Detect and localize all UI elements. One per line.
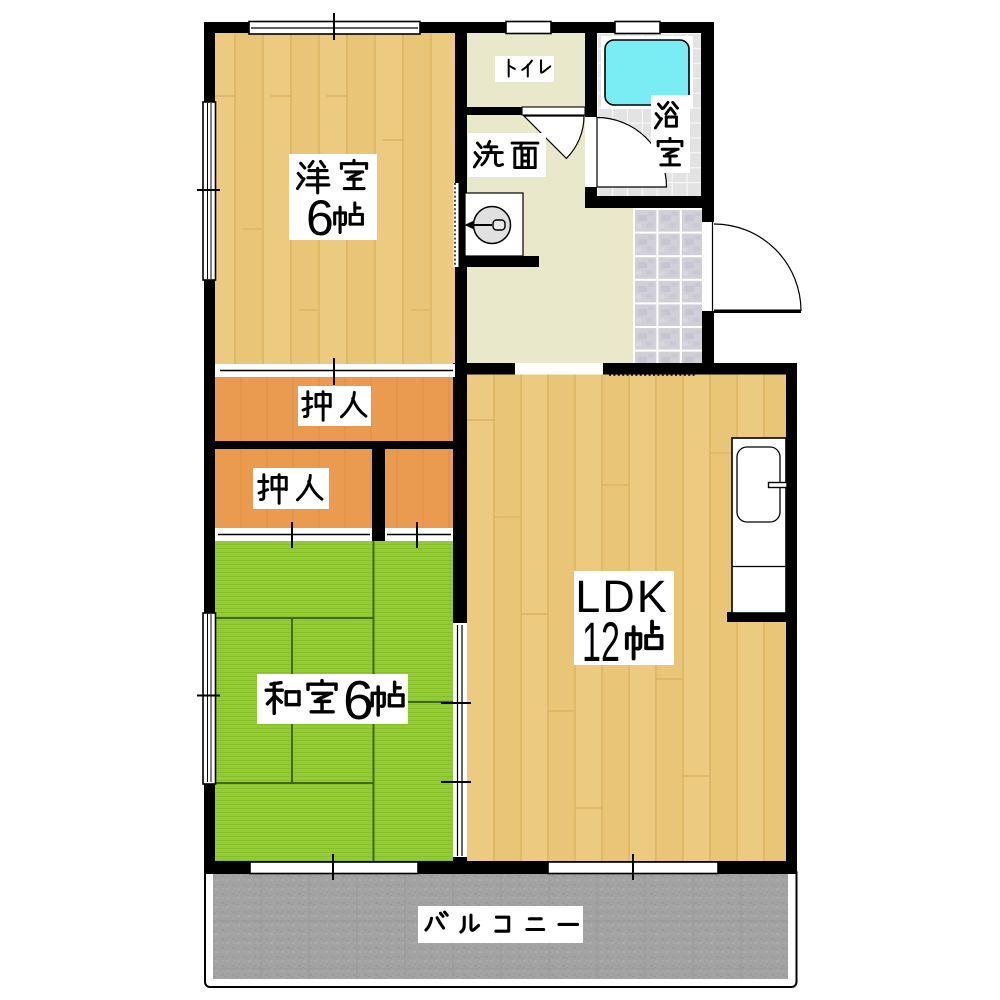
svg-text:6: 6 [343,669,374,731]
svg-text:12: 12 [582,610,620,673]
svg-text:6: 6 [306,190,334,246]
